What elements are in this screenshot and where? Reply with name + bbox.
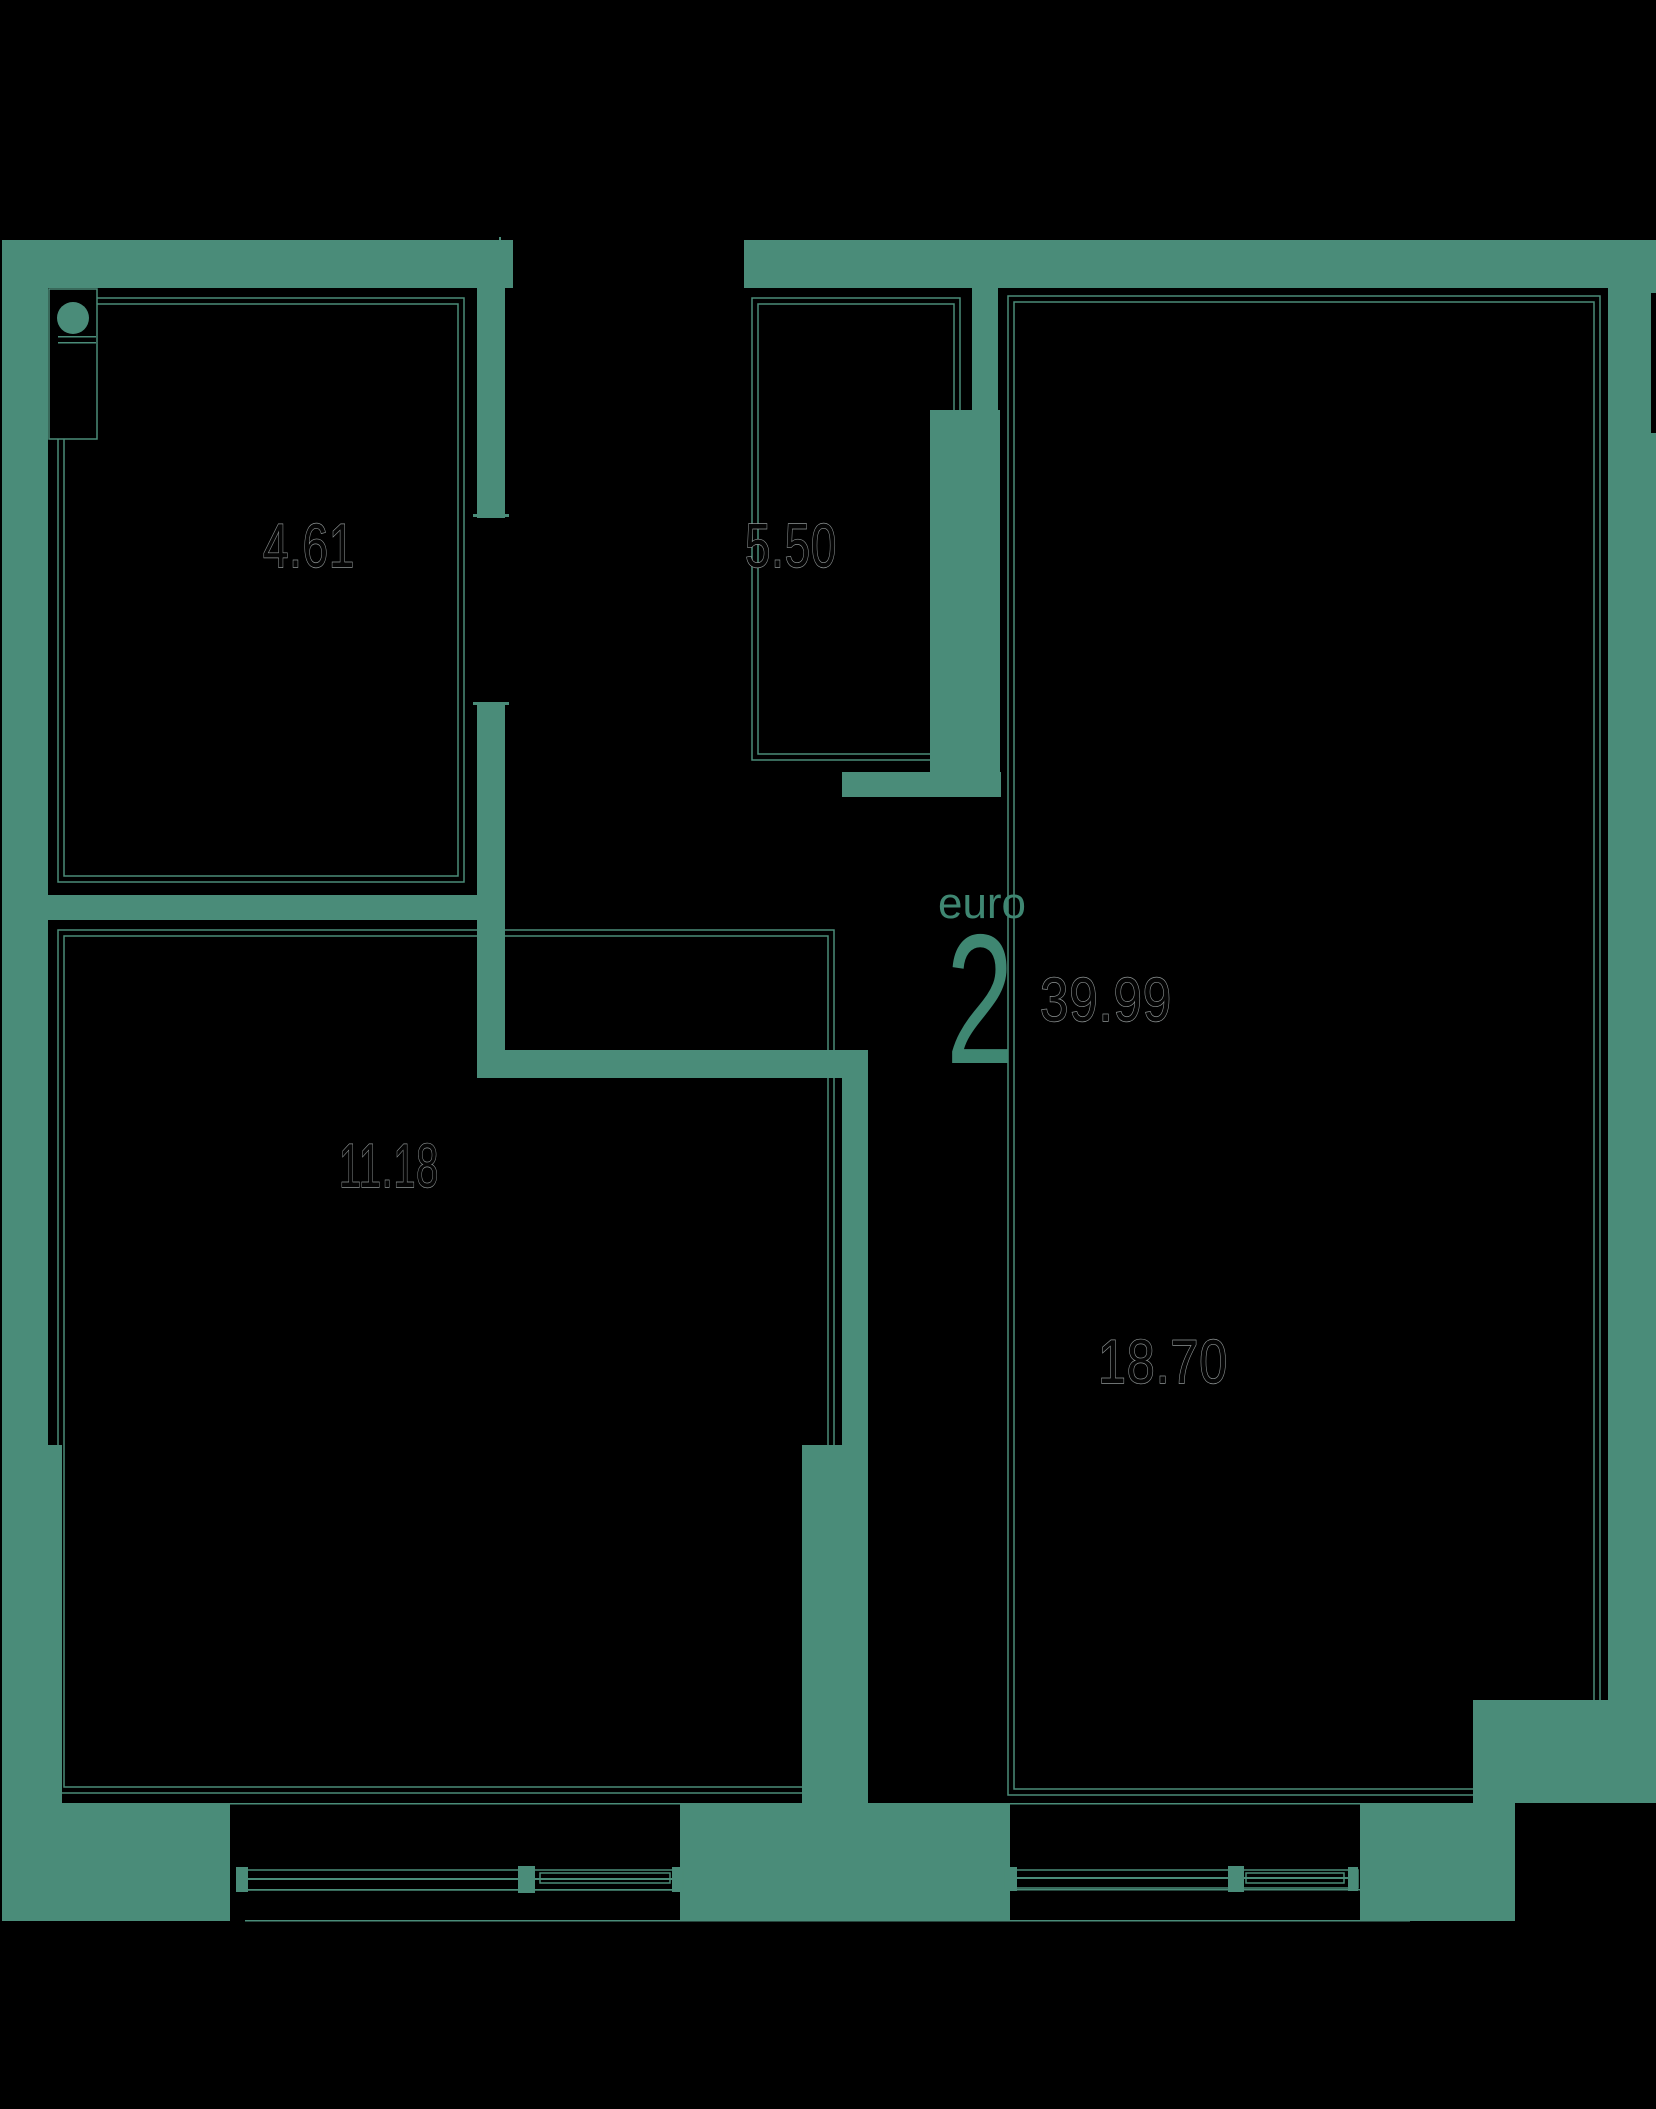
wall-bathroom-bottom [48, 895, 505, 920]
wall-top-right [744, 240, 1656, 288]
right-wall-notch [1651, 293, 1656, 433]
wall-hallway-bottom [842, 772, 1001, 797]
floor-plan-page: 4.61 5.50 11.18 18.70 euro 2 39.99 [0, 0, 1656, 2109]
bathroom-door-jamb-bottom [473, 702, 509, 705]
shaft-edge-line [499, 237, 501, 290]
wall-hallway-right-narrow [972, 288, 998, 410]
wall-hallway-right-wide [930, 410, 1000, 797]
sill-line-left [230, 1803, 683, 1805]
wall-bedroom-right-lower [802, 1445, 868, 1803]
bathroom-door-jamb-top [473, 514, 509, 517]
counter-line-b [58, 342, 96, 344]
window-right-glass-line [1005, 1877, 1358, 1879]
unit-total-area: 39.99 [1040, 966, 1172, 1035]
wall-right-corner-block [1473, 1700, 1656, 1803]
wall-bottom-right-block [1360, 1803, 1515, 1921]
window-left-cap-a [236, 1867, 248, 1892]
counter-line-a [58, 336, 96, 338]
wall-hall-bedroom-divider [477, 1050, 868, 1078]
wall-bathroom-right-upper [477, 288, 505, 518]
wall-bathroom-right-lower [477, 705, 505, 1050]
wall-top-left [2, 240, 513, 288]
sill-line-right [1010, 1803, 1360, 1805]
bathroom-area-label: 4.61 [263, 512, 355, 581]
window-right-mullion [1228, 1866, 1244, 1892]
hallway-area-label: 5.50 [745, 512, 837, 581]
wall-bottom-left-block [2, 1803, 230, 1921]
unit-rooms-count: 2 [946, 897, 1014, 1103]
window-left-glass-line [240, 1878, 683, 1880]
window-right-cap-b [1348, 1867, 1358, 1891]
window-left-cap-b [672, 1867, 682, 1892]
wall-bedroom-right-upper [842, 1078, 868, 1445]
floor-plan: 4.61 5.50 11.18 18.70 euro 2 39.99 [0, 0, 1656, 2109]
window-right-cap-a [1005, 1867, 1017, 1891]
wall-bottom-middle-pillar [680, 1803, 1010, 1921]
sink-icon [57, 302, 89, 334]
bedroom-area-label: 11.18 [339, 1132, 439, 1201]
living-room-area-label: 18.70 [1098, 1328, 1228, 1397]
wall-left-upper [2, 240, 48, 1445]
bathroom-fixtures [49, 289, 97, 439]
window-left-mullion [518, 1866, 535, 1893]
facade-line-lower [245, 1920, 1410, 1922]
wall-left-lower [2, 1445, 62, 1803]
wall-right [1608, 288, 1656, 1700]
